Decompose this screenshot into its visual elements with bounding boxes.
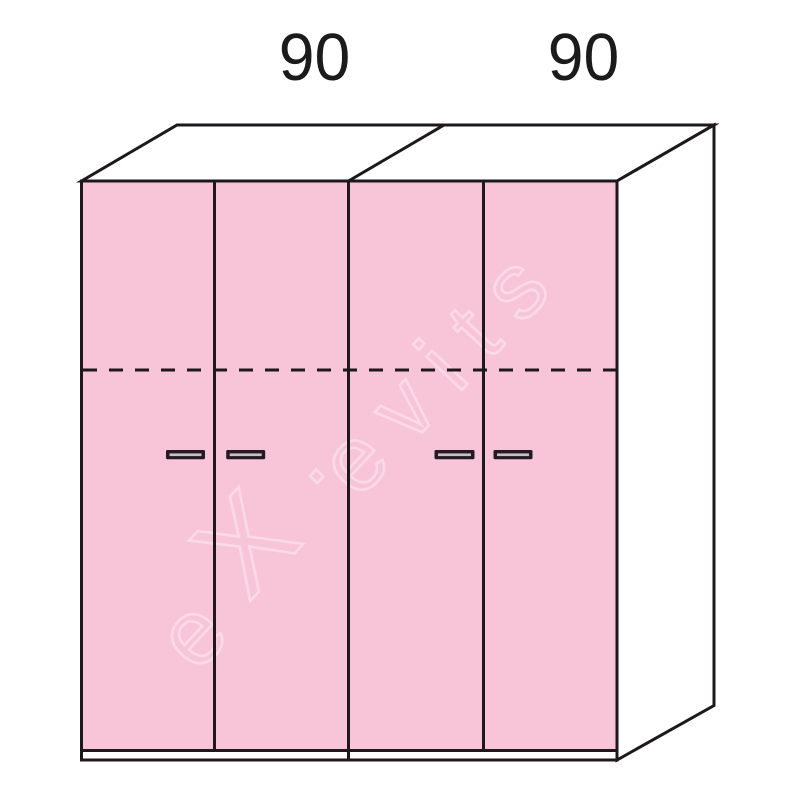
svg-text:90: 90 xyxy=(548,20,620,94)
svg-text:90: 90 xyxy=(279,20,351,94)
